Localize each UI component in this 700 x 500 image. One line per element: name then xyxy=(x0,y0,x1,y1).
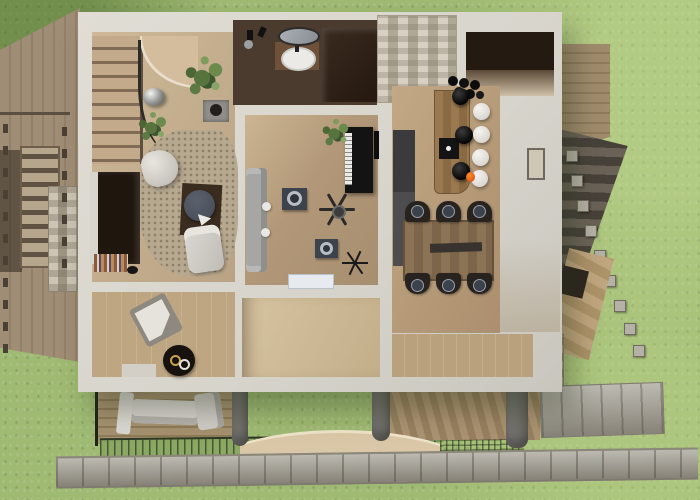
floor-plan-scene xyxy=(0,0,700,500)
lounge-chair xyxy=(128,292,183,348)
round-coffee-table xyxy=(163,345,195,376)
lounge-cushion xyxy=(134,299,176,342)
white-dish xyxy=(179,359,190,370)
low-bench xyxy=(122,364,156,377)
lounge-room-items xyxy=(0,0,700,500)
